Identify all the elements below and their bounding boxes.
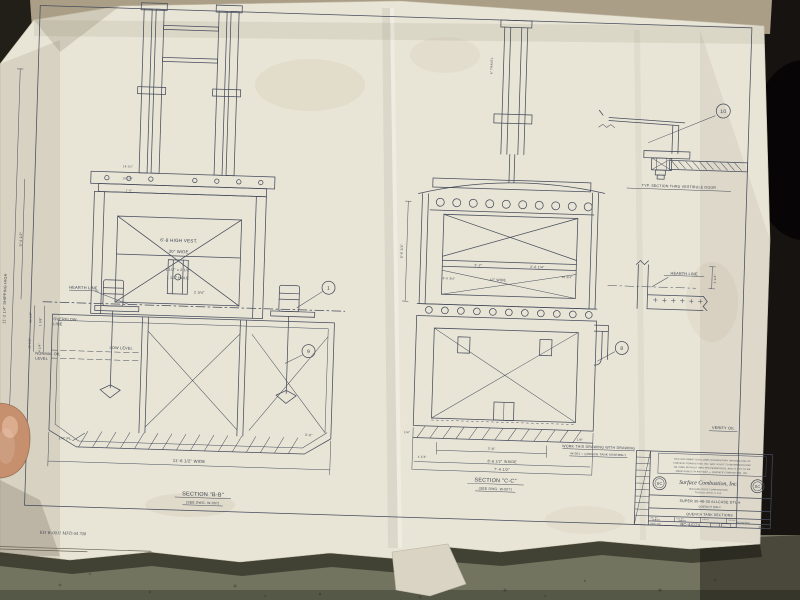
drawing-title: QUENCH ONLY xyxy=(699,504,722,509)
dim-label: 3'-0" xyxy=(305,433,313,437)
sc-logo-text: SC xyxy=(656,481,662,486)
dim-label: 4 1/4" xyxy=(37,343,41,352)
dim-label: 1 3/8" xyxy=(38,317,42,326)
overflow-label: LINE xyxy=(53,322,63,326)
dwg-no-label: DWG. NO. xyxy=(650,523,661,525)
dim-label: 10 3/4" xyxy=(562,275,573,279)
normal-oil-label: LEVEL xyxy=(35,357,48,361)
callout-number: 9 xyxy=(307,349,310,355)
dim-label: 3'-2" xyxy=(474,263,482,267)
dim-label: 3'-6" xyxy=(488,447,496,451)
dim-label: 11'-6 1/2" WIDE xyxy=(173,458,206,464)
dim-label: 5'-0 1/4" xyxy=(400,243,404,258)
dim-label: 13 1/8" xyxy=(27,338,31,349)
dim-label: 42" WIDE xyxy=(490,278,507,283)
photo-of-engineering-drawing: 6'-8 HIGH VEST. 30" WIDE 1 1/2" x 2 1/2"… xyxy=(0,0,800,600)
sc-logo: SC xyxy=(751,480,764,493)
dim-label: 2 3/4" xyxy=(194,291,205,295)
sheet-number: 001 xyxy=(759,525,765,529)
dim-label: 2'-6 1/4" xyxy=(530,265,545,269)
dim-label: 1 1/2" HOLE xyxy=(167,276,190,281)
floor-vignette xyxy=(0,590,800,600)
hearth-line-label: HEARTH LINE xyxy=(69,285,98,291)
dim-label: 4 1/4" xyxy=(418,455,427,459)
shipping-width-dim: 6'-4 1/2" xyxy=(19,231,23,246)
dim-label: 30" WIDE xyxy=(169,249,189,255)
dim-label: 10 1/2" xyxy=(28,312,32,323)
field-label: APP'D xyxy=(702,518,709,521)
sc-logo-text: SC xyxy=(754,484,760,489)
blueprint-photo-canvas: 6'-8 HIGH VEST. 30" WIDE 1 1/2" x 2 1/2"… xyxy=(0,0,800,600)
callout-number: 8 xyxy=(620,346,623,352)
callout-10: 10 xyxy=(720,109,726,115)
overflow-label: OVERFLOW xyxy=(53,317,77,322)
low-level-label: LOW LEVEL xyxy=(109,346,132,351)
dim-label: 10 1/4" xyxy=(123,176,133,180)
sc-logo: SC xyxy=(653,477,666,490)
dim-label: 1/4" xyxy=(404,430,410,434)
dim-label: 1/8" xyxy=(577,438,583,442)
dim-label: 7'-4 1/2" xyxy=(494,468,510,473)
dim-label: 1'-0" xyxy=(126,188,133,192)
dim-label: 1/4" PL. xyxy=(59,436,73,440)
dim-label: 3'-6 3/4" xyxy=(442,276,455,280)
callout-number: 1 xyxy=(327,286,330,292)
dwg-no-value: RC-44124 xyxy=(680,522,701,528)
dim-label: 18 1/2" xyxy=(123,164,133,168)
verify-oil-note: VERIFY OIL xyxy=(712,426,735,431)
field-label: SCALE xyxy=(728,519,736,522)
dim-label: 5 1/4" xyxy=(713,274,717,283)
dim-label: 6" TRAVEL xyxy=(489,57,494,74)
dim-label: 1 1/2" x 2 1/2" xyxy=(165,268,191,273)
